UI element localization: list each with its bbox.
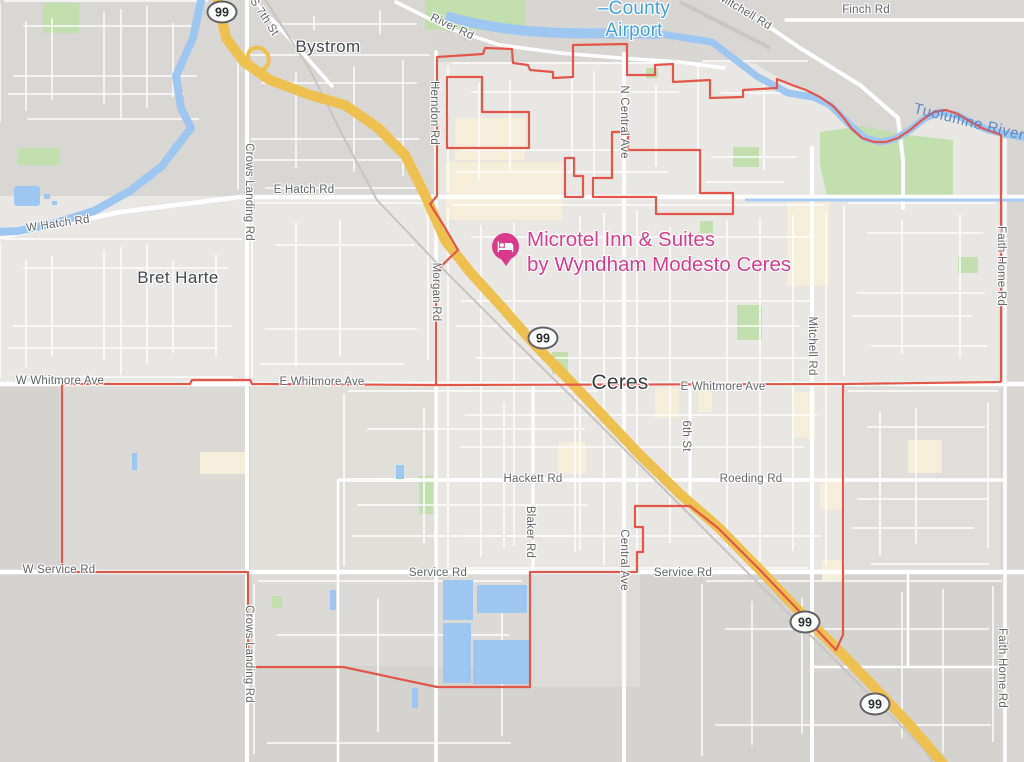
hotel-poi-label[interactable]: Microtel Inn & Suites by Wyndham Modesto… [527, 227, 791, 277]
map-canvas[interactable]: Bystrom Bret Harte Ceres –County Airport… [0, 0, 1024, 762]
hotel-map-pin[interactable] [492, 233, 519, 260]
map-base-layer [0, 0, 1024, 762]
google-maps-map-view: { "colors": { "boundary_red": "#e2574a",… [0, 0, 1024, 762]
bed-icon [497, 238, 514, 255]
